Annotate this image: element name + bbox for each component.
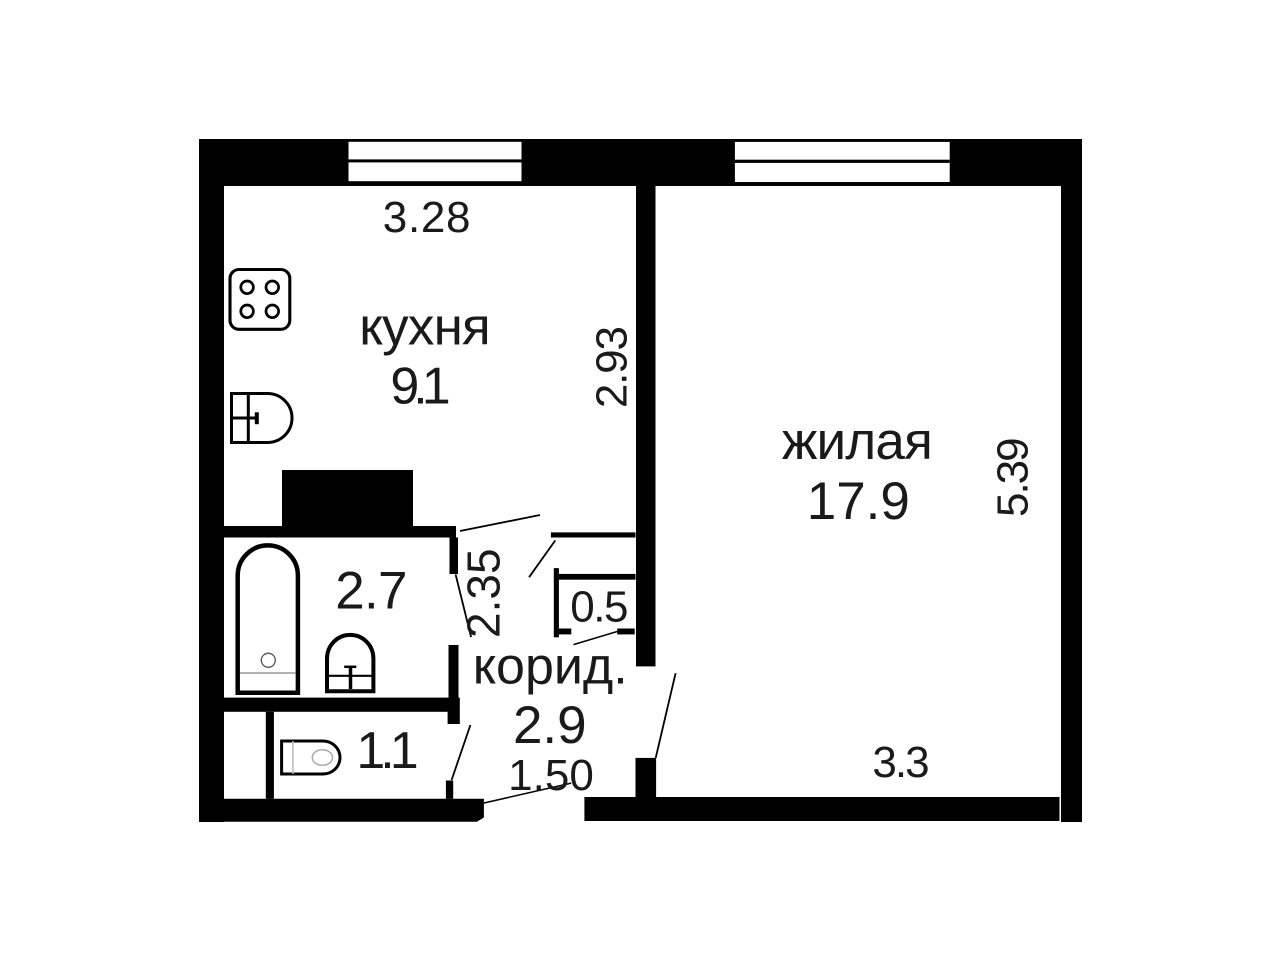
svg-text:1.1: 1.1: [356, 722, 416, 780]
svg-text:корид.: корид.: [473, 638, 628, 696]
svg-text:жилая: жилая: [782, 412, 932, 471]
svg-text:5.39: 5.39: [989, 439, 1038, 517]
svg-text:2.35: 2.35: [457, 548, 509, 638]
svg-text:3.28: 3.28: [383, 193, 471, 242]
svg-text:0.5: 0.5: [570, 583, 627, 632]
svg-text:2.93: 2.93: [588, 327, 637, 408]
svg-text:3.3: 3.3: [872, 738, 928, 787]
svg-text:9.1: 9.1: [390, 358, 448, 416]
svg-text:1.50: 1.50: [508, 751, 594, 800]
svg-text:кухня: кухня: [359, 298, 490, 357]
svg-text:2.7: 2.7: [335, 561, 406, 620]
svg-text:2.9: 2.9: [513, 696, 587, 755]
svg-text:17.9: 17.9: [807, 472, 910, 531]
